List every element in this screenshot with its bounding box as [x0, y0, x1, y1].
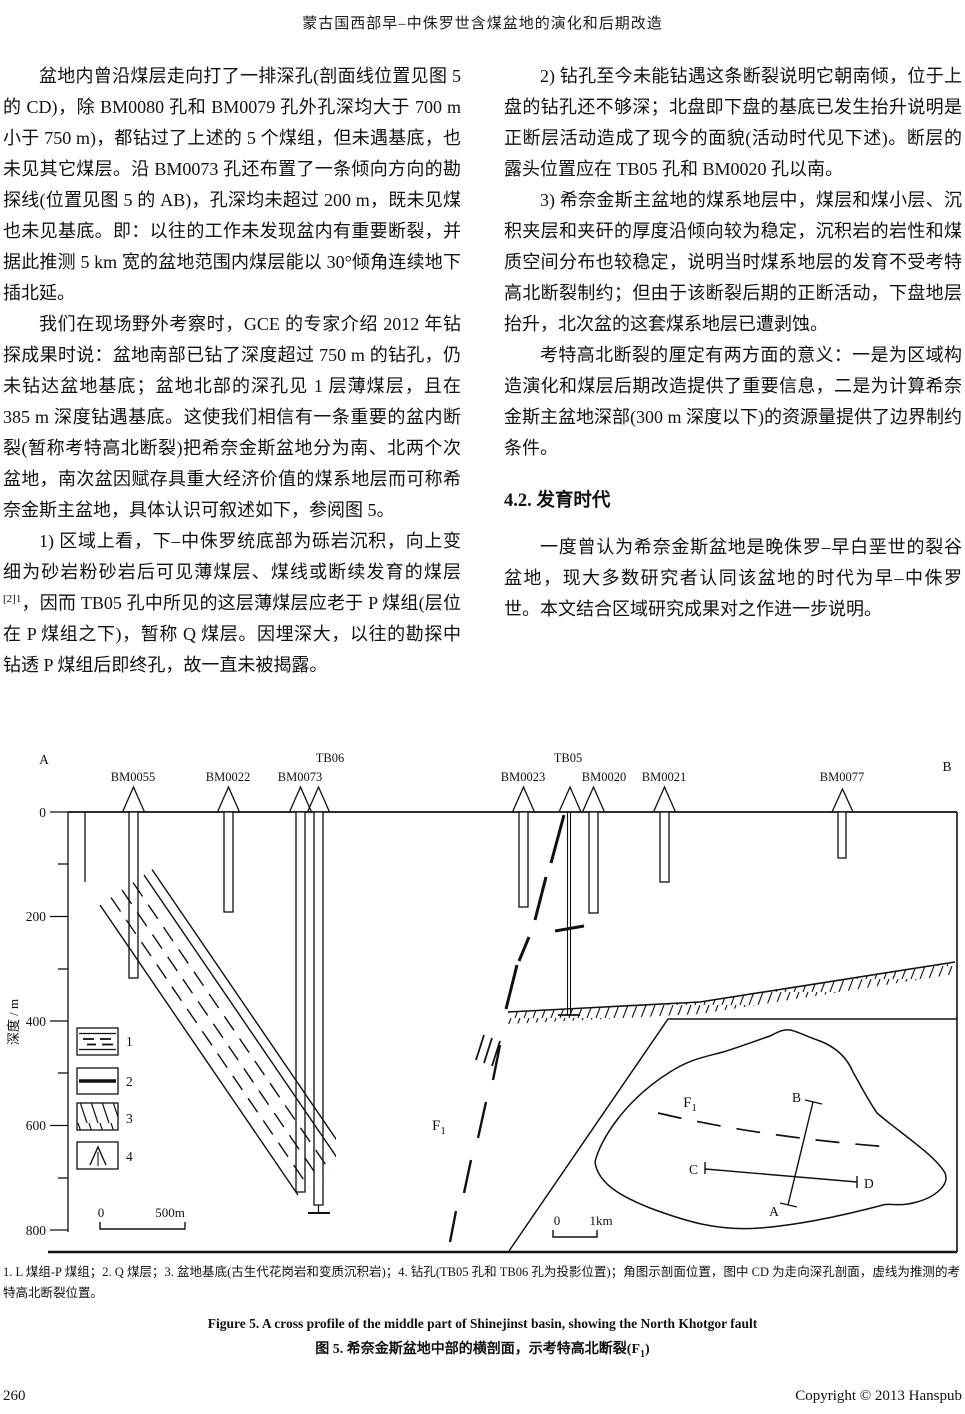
- page-footer: 260 Copyright © 2013 Hanspub: [3, 1388, 962, 1405]
- depth-tick-600: 600: [26, 1118, 47, 1133]
- inset-fault-label: F1: [683, 1095, 697, 1114]
- paragraph: 2) 钻孔至今未能钻遇这条断裂说明它朝南倾，位于上盘的钻孔还不够深；北盘即下盘的…: [504, 61, 962, 185]
- caption-text: 图 5. 希奈金斯盆地中部的横剖面，示考特高北断裂(F: [315, 1342, 640, 1357]
- depth-tick-400: 400: [26, 1014, 47, 1029]
- basement-hatch: [508, 962, 955, 1024]
- well-bm0073: [296, 812, 305, 1192]
- depth-axis-label: 深度 / m: [6, 999, 21, 1045]
- section-heading: 4.2. 发育时代: [504, 486, 962, 517]
- depth-tick-800: 800: [26, 1223, 47, 1238]
- well-columns: [129, 812, 846, 1205]
- figure-legend: [77, 1028, 118, 1169]
- basin-outline: [595, 1030, 946, 1229]
- well-bm0023: [519, 812, 528, 907]
- fault-subscript: 1: [440, 1125, 446, 1137]
- right-column: 2) 钻孔至今未能钻遇这条断裂说明它朝南倾，位于上盘的钻孔还不够深；北盘即下盘的…: [504, 61, 962, 625]
- endpoint-a-label: A: [39, 752, 49, 767]
- section-frame: [48, 812, 957, 1252]
- page-number: 260: [3, 1388, 26, 1405]
- well-label-bm0022: BM0022: [206, 770, 250, 784]
- depth-tick-0: 0: [39, 805, 46, 820]
- fault-subscript: 1: [691, 1102, 697, 1114]
- well-label-tb05: TB05: [554, 751, 582, 765]
- inset-point-d: D: [864, 1176, 874, 1191]
- paragraph: 考特高北断裂的厘定有两方面的意义：一是为区域构造演化和煤层后期改造提供了重要信息…: [504, 340, 962, 464]
- legend-num-1: 1: [126, 1034, 133, 1049]
- fault-letter: F: [432, 1118, 440, 1134]
- copyright-text: Copyright © 2013 Hanspub: [795, 1388, 962, 1405]
- well-tb06: [314, 812, 323, 1205]
- page-title: 蒙古国西部早–中侏罗世含煤盆地的演化和后期改造: [0, 12, 965, 33]
- legend-num-3: 3: [126, 1111, 133, 1126]
- section-scale-bar: [100, 1222, 185, 1229]
- well-label-bm0073: BM0073: [278, 770, 322, 784]
- well-label-bm0055: BM0055: [111, 770, 155, 784]
- inset-map: F1 B A C D 0 1km: [509, 1019, 957, 1251]
- figure-caption-zh: 图 5. 希奈金斯盆地中部的横剖面，示考特高北断裂(F1): [0, 1338, 965, 1360]
- profile-line-ab: [788, 1102, 813, 1205]
- paragraph-text: 1) 区域上看，下–中侏罗统底部为砾岩沉积，向上变细为砂岩粉砂岩后可见薄煤层、煤…: [3, 531, 461, 582]
- inset-border: [509, 1019, 957, 1251]
- section-scale-zero: 0: [98, 1205, 105, 1220]
- cross-section-svg: 0 200 400 600 800 深度 / m A B TB06 TB05 B…: [0, 745, 965, 1260]
- depth-tick-200: 200: [26, 909, 47, 924]
- section-scale-label: 500m: [155, 1205, 185, 1220]
- fault-letter: F: [683, 1095, 691, 1111]
- legend-num-2: 2: [126, 1074, 133, 1089]
- inset-scale-bar: [553, 1230, 597, 1237]
- well-bm0077: [838, 812, 846, 858]
- inset-point-a: A: [769, 1204, 779, 1219]
- profile-lines: [705, 1100, 857, 1207]
- well-arrow-markers: [123, 787, 854, 812]
- paragraph: 一度曾认为希奈金斯盆地是晚侏罗–早白垩世的裂谷盆地，现大多数研究者认同该盆地的时…: [504, 532, 962, 625]
- paragraph: 我们在现场野外考察时，GCE 的专家介绍 2012 年钻探成果时说：盆地南部已钻…: [3, 309, 461, 526]
- well-label-bm0077: BM0077: [820, 770, 864, 784]
- well-label-bm0021: BM0021: [642, 770, 686, 784]
- legend-swatch-basement: [77, 1103, 118, 1130]
- figure-legend-note: 1. L 煤组-P 煤组；2. Q 煤层；3. 盆地基底(古生代花岗岩和变质沉积…: [3, 1262, 960, 1304]
- profile-line-cd: [705, 1169, 857, 1182]
- fault-f1-label: F1: [432, 1118, 446, 1137]
- well-label-bm0023: BM0023: [501, 770, 545, 784]
- figure-5-cross-section: 0 200 400 600 800 深度 / m A B TB06 TB05 B…: [0, 745, 965, 1260]
- endpoint-b-label: B: [942, 759, 951, 774]
- inset-scale-zero: 0: [554, 1213, 561, 1228]
- well-bm0022: [224, 812, 233, 912]
- caption-text: ): [645, 1342, 650, 1357]
- figure-caption-en: Figure 5. A cross profile of the middle …: [0, 1316, 965, 1332]
- legend-swatch-coal-group: [77, 1028, 118, 1055]
- inset-point-b: B: [792, 1090, 801, 1105]
- well-label-bm0020: BM0020: [582, 770, 626, 784]
- legend-num-4: 4: [126, 1149, 133, 1164]
- paragraph: 盆地内曾沿煤层走向打了一排深孔(剖面线位置见图 5 的 CD)，除 BM0080…: [3, 61, 461, 309]
- left-column: 盆地内曾沿煤层走向打了一排深孔(剖面线位置见图 5 的 CD)，除 BM0080…: [3, 61, 461, 681]
- depth-axis: [50, 812, 68, 1232]
- fault-f1-line: [450, 815, 584, 1242]
- paragraph: 3) 希奈金斯主盆地的煤系地层中，煤层和煤小层、沉积夹层和夹矸的厚度沿倾向较为稳…: [504, 185, 962, 340]
- inset-point-c: C: [689, 1162, 698, 1177]
- paragraph-text: ，因而 TB05 孔中所见的这层薄煤层应老于 P 煤组(层位在 P 煤组之下)，…: [3, 593, 461, 675]
- well-bm0020: [589, 812, 598, 913]
- well-bm0021: [660, 812, 669, 882]
- well-label-tb06: TB06: [316, 751, 344, 765]
- inset-fault-dashed-line: [658, 1113, 890, 1147]
- paragraph: 1) 区域上看，下–中侏罗统底部为砾岩沉积，向上变细为砂岩粉砂岩后可见薄煤层、煤…: [3, 526, 461, 681]
- reference-superscript: [2]1: [3, 593, 21, 605]
- well-tb05-line: [568, 812, 571, 1015]
- inset-scale-label: 1km: [589, 1213, 612, 1228]
